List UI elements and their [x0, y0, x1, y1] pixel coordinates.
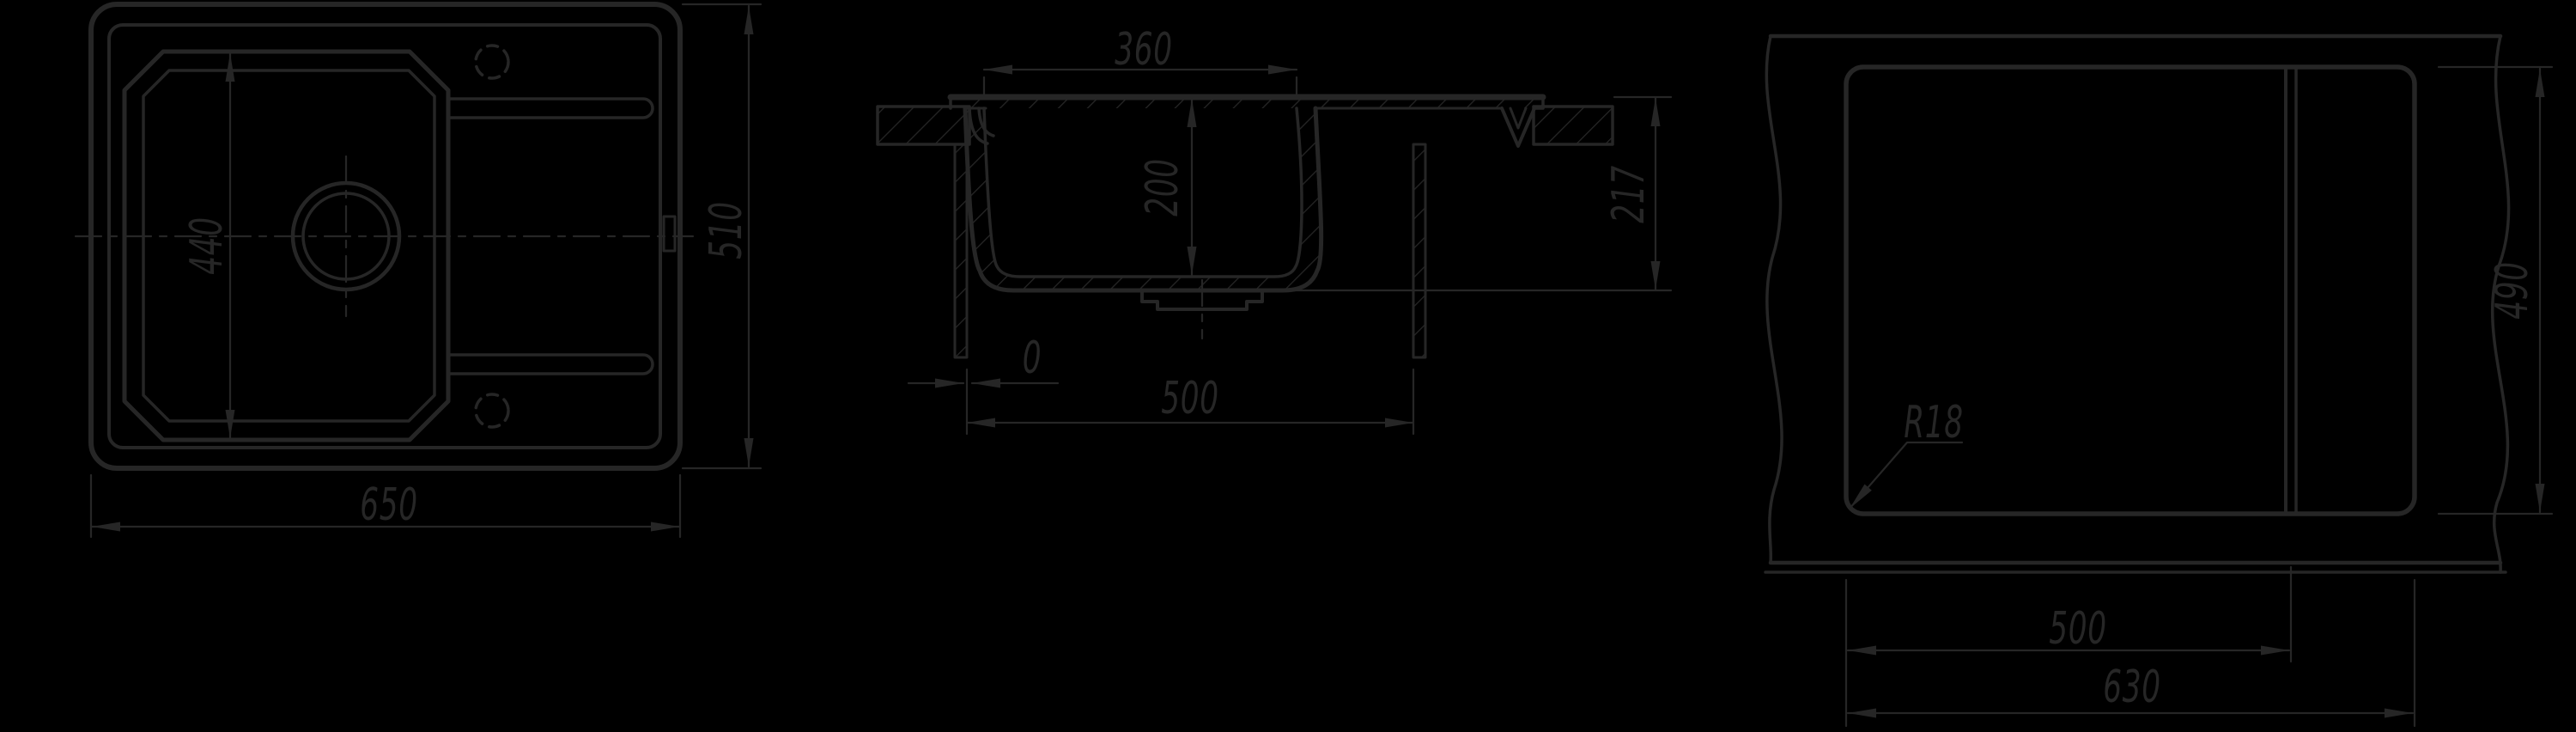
- dim-label-edge-gap: 0: [1023, 332, 1042, 384]
- section-view: 360 200 217 0 500: [878, 24, 1671, 434]
- clip-groove-inner: [1510, 108, 1526, 128]
- dim-label-overall-depth: 217: [1603, 165, 1655, 223]
- dim-label-overall-width: 510: [701, 201, 752, 259]
- faucet-hole-bottom: [476, 394, 508, 427]
- drainboard-groove-bottom: [448, 355, 653, 374]
- cabinet-panel-right: [1413, 144, 1425, 357]
- sink-section-material: [951, 97, 1543, 290]
- plan-view: 440 510 650: [76, 4, 761, 537]
- dim-label-cabinet-width: 500: [1161, 373, 1218, 424]
- cabinet-panel-left: [955, 144, 967, 357]
- radius-leader-line: [1850, 442, 1962, 509]
- sink-technical-drawing: 440 510 650 360: [0, 0, 2576, 732]
- dim-label-overall-length: 650: [360, 479, 417, 531]
- countertop-right: [1534, 107, 1613, 144]
- faucet-hole-top: [476, 46, 508, 78]
- dim-label-basin-length: 440: [181, 217, 233, 274]
- dim-label-cutout-width: 630: [2103, 662, 2160, 713]
- drainboard-groove-top: [448, 99, 653, 118]
- dim-label-bowl-top-width: 360: [1115, 24, 1172, 76]
- dim-label-cutout-depth: 490: [2487, 261, 2538, 319]
- dim-label-bowl-depth: 200: [1137, 158, 1188, 216]
- cutout-view: R18 490 500 630: [1765, 36, 2552, 726]
- break-line-left: [1766, 36, 1782, 563]
- countertop-left: [878, 107, 969, 144]
- overflow-notch: [664, 217, 675, 251]
- dim-label-corner-radius: R18: [1904, 397, 1963, 448]
- dim-label-divider-offset: 500: [2049, 603, 2106, 655]
